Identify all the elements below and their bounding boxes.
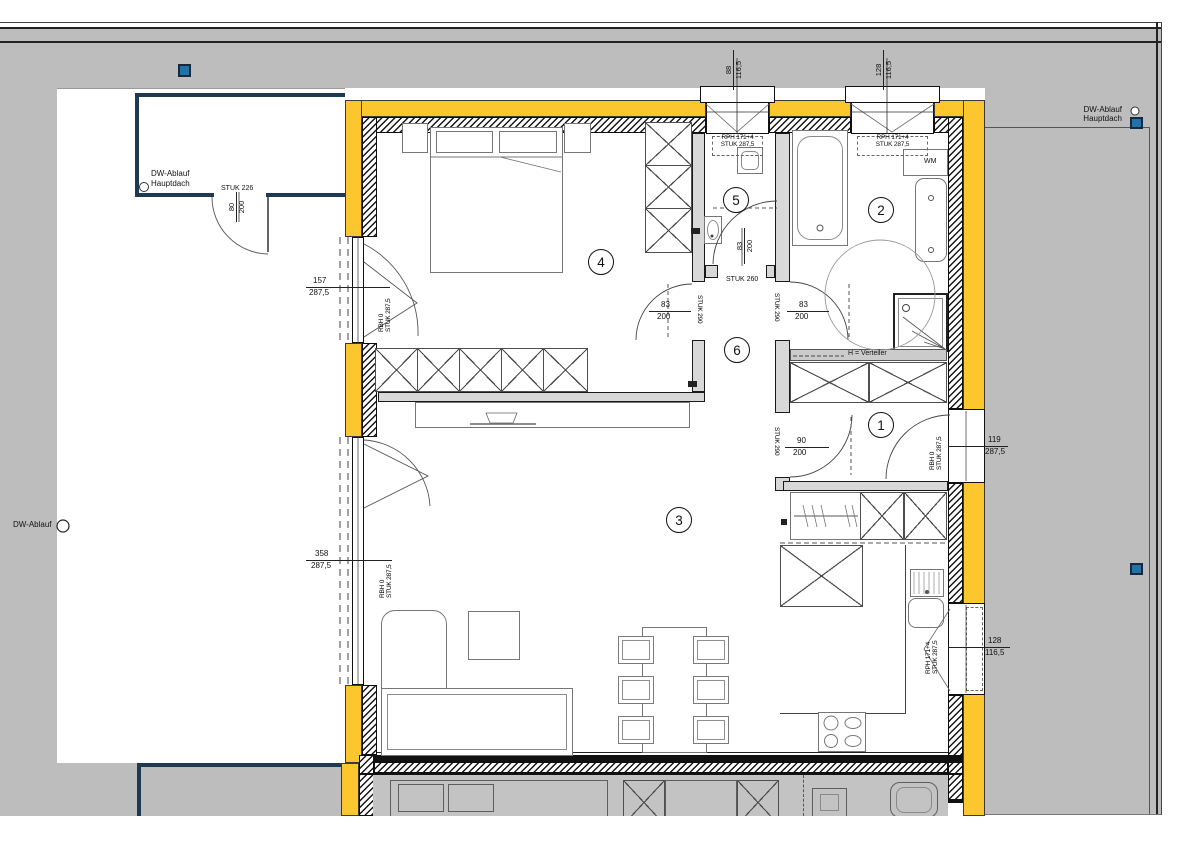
- wall-right: [948, 117, 963, 409]
- dim-83-bath-w: 83: [799, 301, 808, 310]
- roof-bottom-left: [0, 763, 341, 816]
- dim-128k-note: RPH 171+4 STUK 287,5: [925, 612, 939, 674]
- stuk-bedroom-door: STUK 290: [696, 295, 703, 323]
- wall-int: [775, 133, 790, 282]
- balcony-drain-label-2: Hauptdach: [151, 180, 190, 189]
- kitchen-window-reveal: [966, 607, 983, 691]
- kitchen-tall-cabinet: [780, 545, 863, 607]
- adjacent-pillow: [448, 784, 494, 812]
- roof-edge-line: [1156, 22, 1158, 815]
- roof-left-column: [0, 88, 57, 763]
- adjacent-cabinet: [665, 780, 737, 816]
- wc-window-note: RPH 171+4 STUK 287,5: [700, 134, 775, 149]
- left-drain-label: DW-Ablauf: [13, 521, 52, 530]
- roof-right-field: [985, 88, 1161, 815]
- floor-plan: DW-Ablauf Hauptdach STUK 226 80200 DW-Ab…: [0, 0, 1200, 860]
- wall-insulation-left-lower: [341, 763, 359, 816]
- dining-chair: [693, 676, 729, 704]
- wardrobe: [645, 208, 692, 253]
- coffee-table: [468, 611, 520, 660]
- wall-left: [362, 685, 377, 755]
- balcony-parapet-left: [135, 93, 139, 197]
- wall-int: [692, 340, 705, 392]
- dim-83-bedroom-w: 83: [661, 301, 670, 310]
- lower-roof-parapet-v: [137, 763, 141, 816]
- nightstand: [402, 123, 428, 153]
- dim-157-h: 287,5: [309, 289, 329, 298]
- dim-128-top: 128116,5: [874, 50, 893, 90]
- balcony-parapet-bottom-r: [266, 193, 345, 197]
- bath-window-note: RPH 171+4 STUK 287,5: [845, 134, 940, 149]
- balcony-drain-label-1: DW-Ablauf: [151, 170, 190, 179]
- bathtub-inner: [797, 136, 843, 240]
- wall-left: [362, 117, 377, 237]
- parapet-line: [0, 41, 1162, 43]
- dim-83-bedroom-h: 200: [657, 313, 670, 322]
- bedroom-terrace-door-frame: [352, 237, 364, 343]
- dining-chair: [618, 676, 654, 704]
- dim-358-note: RBH 0 STUK 287,5: [379, 538, 393, 598]
- living-terrace-door-frame: [352, 437, 364, 685]
- wall-int: [766, 265, 775, 278]
- parapet-line: [0, 27, 1162, 29]
- lower-roof-parapet-h: [137, 763, 341, 767]
- stuk-wc-door: STUK 260: [726, 276, 758, 284]
- wardrobe: [543, 348, 588, 392]
- dim-line: [785, 447, 829, 448]
- roof-top-band: [0, 29, 1161, 88]
- wm-label: WM: [924, 158, 936, 166]
- right-drain-label-2: Hauptdach: [1074, 115, 1122, 124]
- dim-119-w: 119: [988, 436, 1001, 445]
- coat-closet-cabinet: [860, 492, 904, 540]
- roof-edge-line: [1161, 22, 1162, 815]
- wall-insulation-top: [769, 100, 851, 117]
- dining-chair: [618, 716, 654, 744]
- verteiler-label: H = Verteiler: [848, 350, 887, 358]
- shower-inner: [898, 298, 943, 347]
- stuk-bath-door: STUK 290: [773, 293, 780, 321]
- dim-line: [649, 311, 691, 312]
- wardrobe: [645, 165, 692, 209]
- cooktop: [818, 712, 866, 752]
- dim-119-note: RBH 0 STUK 287,5: [929, 410, 943, 470]
- roof-bottom-line: [985, 814, 1161, 815]
- adjacent-fixture-inner: [820, 794, 839, 811]
- radiator: [915, 178, 947, 262]
- wc-window-frame: [706, 102, 769, 134]
- dim-83-wc: 83200: [735, 228, 754, 264]
- pillow: [436, 131, 493, 153]
- terrace-top-line: [57, 88, 345, 89]
- room-number-4: 4: [588, 249, 614, 275]
- adjacent-dash-line: [803, 775, 804, 816]
- wall-int-hall-kitchen: [783, 481, 948, 491]
- wardrobe: [459, 348, 502, 392]
- balcony-gate-dim: 80200: [227, 192, 246, 222]
- dim-358-w: 358: [315, 550, 328, 559]
- room-number-1: 1: [868, 412, 894, 438]
- dim-157-note: RBH 0 STUK 287,5: [378, 272, 392, 332]
- hand-basin-bowl: [707, 220, 719, 240]
- wall-right: [948, 483, 963, 603]
- dim-90-hall-h: 200: [793, 449, 806, 458]
- dim-358-h: 287,5: [311, 562, 331, 571]
- terrace: [57, 88, 345, 763]
- adjacent-wardrobe: [623, 780, 665, 816]
- wall-left-lower: [359, 755, 374, 816]
- wall-insulation-left: [345, 100, 362, 237]
- dining-chair: [693, 636, 729, 664]
- wall-right-cap: [948, 799, 963, 803]
- dim-119-h: 287,5: [985, 448, 1005, 457]
- coat-closet-cabinet: [904, 492, 947, 540]
- wardrobe: [645, 122, 692, 166]
- dining-chair: [618, 636, 654, 664]
- room-number-5: 5: [723, 187, 749, 213]
- balcony-parapet-bottom-l: [135, 193, 214, 197]
- dim-line: [787, 311, 829, 312]
- adjacent-pillow: [398, 784, 444, 812]
- dim-128k-w: 128: [988, 637, 1001, 646]
- wall-insulation-left: [345, 343, 362, 437]
- stuk-hall-door: STUK 290: [773, 427, 780, 455]
- wall-right: [948, 695, 963, 800]
- adjacent-bathtub-inner: [896, 787, 932, 813]
- wardrobe: [417, 348, 460, 392]
- dim-157-w: 157: [313, 277, 326, 286]
- wardrobe: [375, 348, 418, 392]
- bath-window-frame: [851, 102, 934, 134]
- sideboard: [415, 402, 690, 428]
- wall-bottom: [374, 762, 948, 773]
- partition-bedroom-living: [378, 392, 705, 402]
- room-number-3: 3: [666, 507, 692, 533]
- roof-step-line: [985, 127, 1150, 128]
- roof-drain-square: [1130, 117, 1143, 129]
- roof-edge-line: [1149, 127, 1150, 815]
- wall-insulation-top: [345, 100, 706, 117]
- sink-drainer: [910, 569, 944, 597]
- nightstand: [564, 123, 591, 153]
- roof-drain-square: [1130, 563, 1143, 575]
- balcony-parapet-top: [135, 93, 345, 97]
- wardrobe: [501, 348, 544, 392]
- dining-chair: [693, 716, 729, 744]
- hall-wardrobe: [790, 362, 869, 403]
- dim-83-bath-h: 200: [795, 313, 808, 322]
- adjacent-wardrobe: [737, 780, 779, 816]
- dim-88: 88116,5: [724, 50, 743, 90]
- wall-insulation-left: [345, 685, 362, 763]
- dim-128k-h: 116,5: [985, 649, 1004, 658]
- wall-int: [775, 340, 790, 413]
- kitchen-counter-edge: [905, 545, 906, 713]
- adjacent-unit-strip: [373, 775, 948, 816]
- dim-90-hall-w: 90: [797, 437, 806, 446]
- pillow: [499, 131, 557, 153]
- roof-drain-square: [178, 64, 191, 77]
- sofa-seat-line: [387, 694, 567, 750]
- room-number-6: 6: [724, 337, 750, 363]
- room-number-2: 2: [868, 197, 894, 223]
- wall-int: [692, 133, 705, 282]
- hall-wardrobe: [869, 362, 947, 403]
- wall-int: [705, 265, 718, 278]
- parapet-line: [0, 22, 1162, 23]
